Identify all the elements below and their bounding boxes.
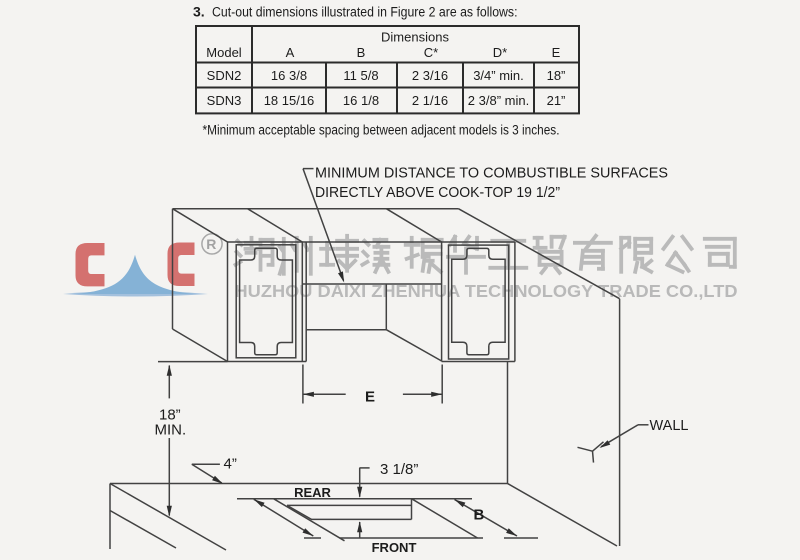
svg-text:B: B: [474, 507, 485, 524]
svg-text:R: R: [206, 236, 216, 252]
svg-text:18”: 18”: [547, 68, 566, 83]
svg-text:3.: 3.: [193, 4, 205, 20]
svg-text:16 1/8: 16 1/8: [343, 93, 379, 108]
svg-text:A: A: [286, 45, 295, 60]
svg-text:4”: 4”: [224, 456, 237, 473]
svg-text:WALL: WALL: [650, 418, 689, 434]
svg-text:C*: C*: [424, 45, 438, 60]
svg-text:*Minimum acceptable spacing be: *Minimum acceptable spacing between adja…: [203, 123, 560, 138]
svg-text:SDN3: SDN3: [207, 93, 242, 108]
svg-text:16 3/8: 16 3/8: [271, 68, 307, 83]
svg-text:FRONT: FRONT: [372, 540, 417, 555]
svg-text:11 5/8: 11 5/8: [343, 68, 378, 83]
svg-text:DIRECTLY ABOVE COOK-TOP 19 1/2: DIRECTLY ABOVE COOK-TOP 19 1/2”: [315, 184, 560, 201]
svg-text:MIN.: MIN.: [155, 422, 187, 439]
svg-text:3 1/8”: 3 1/8”: [380, 461, 418, 478]
svg-text:2 3/8” min.: 2 3/8” min.: [468, 93, 529, 108]
svg-text:18 15/16: 18 15/16: [264, 93, 315, 108]
svg-text:REAR: REAR: [294, 485, 331, 500]
svg-text:3/4” min.: 3/4” min.: [473, 68, 524, 83]
svg-text:SDN2: SDN2: [207, 68, 242, 83]
svg-text:Cut-out dimensions illustrated: Cut-out dimensions illustrated in Figure…: [212, 5, 518, 20]
svg-text:MINIMUM DISTANCE TO COMBUSTIBL: MINIMUM DISTANCE TO COMBUSTIBLE SURFACES: [315, 165, 668, 182]
svg-text:E: E: [365, 389, 375, 406]
svg-text:2 1/16: 2 1/16: [412, 93, 448, 108]
svg-text:21”: 21”: [547, 93, 566, 108]
svg-text:B: B: [357, 45, 366, 60]
svg-text:D*: D*: [493, 45, 507, 60]
svg-text:E: E: [552, 45, 561, 60]
svg-text:Dimensions: Dimensions: [381, 30, 449, 45]
svg-text:2 3/16: 2 3/16: [412, 68, 448, 83]
svg-text:Model: Model: [206, 45, 242, 60]
